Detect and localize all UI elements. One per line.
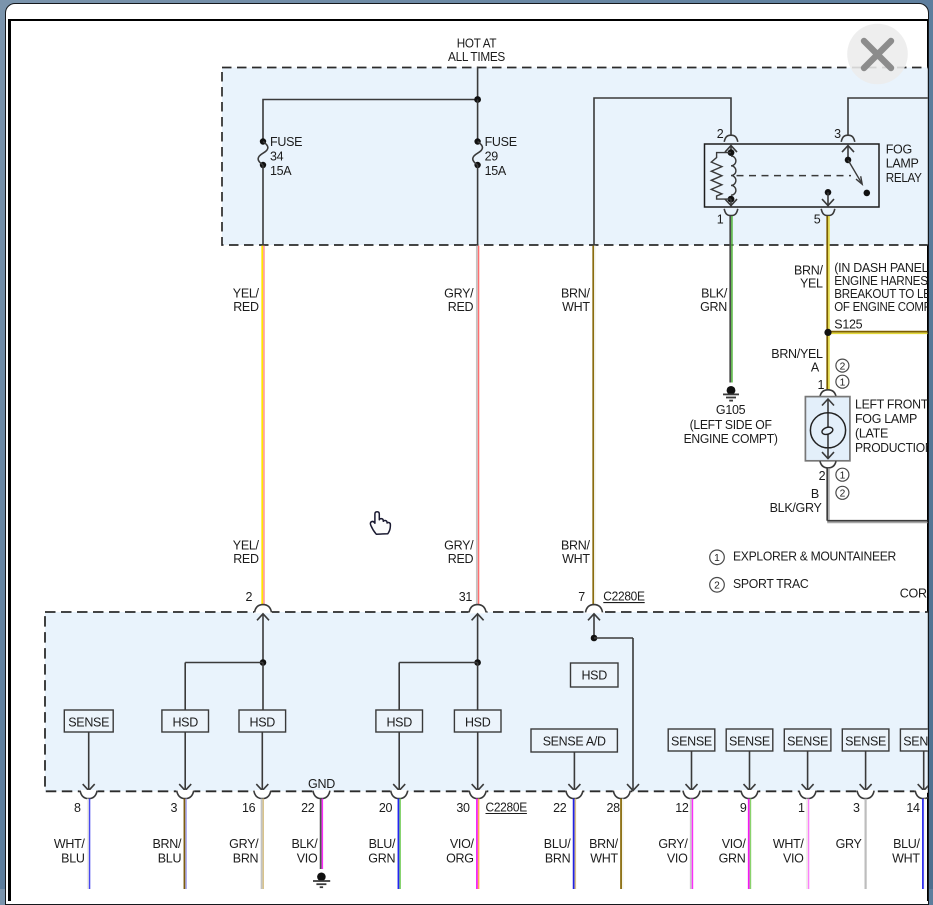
- svg-text:BRN: BRN: [233, 851, 259, 865]
- svg-text:BRN/: BRN/: [794, 263, 823, 277]
- svg-text:RED: RED: [233, 552, 259, 566]
- svg-text:3: 3: [171, 801, 178, 815]
- svg-text:BRN/YEL: BRN/YEL: [771, 347, 823, 361]
- svg-text:S125: S125: [834, 317, 862, 331]
- svg-text:RELAY: RELAY: [886, 171, 923, 185]
- svg-text:GRY: GRY: [836, 837, 863, 851]
- svg-text:16: 16: [242, 801, 256, 815]
- svg-text:3: 3: [834, 127, 841, 141]
- svg-text:GRY/: GRY/: [444, 286, 474, 300]
- svg-text:GRN: GRN: [368, 851, 395, 865]
- svg-text:(LEFT SIDE OF: (LEFT SIDE OF: [690, 418, 773, 432]
- svg-text:2: 2: [245, 590, 252, 604]
- svg-text:(LATE: (LATE: [855, 427, 888, 441]
- svg-text:SENSE: SENSE: [671, 734, 712, 748]
- svg-text:BRN/: BRN/: [561, 286, 590, 300]
- svg-text:GRY/: GRY/: [229, 837, 259, 851]
- svg-text:SENSE A/D: SENSE A/D: [543, 734, 606, 748]
- svg-text:8: 8: [74, 801, 81, 815]
- svg-text:9: 9: [740, 801, 747, 815]
- svg-text:PRODUCTION): PRODUCTION): [855, 441, 933, 455]
- svg-text:SPORT TRAC: SPORT TRAC: [733, 577, 809, 591]
- svg-text:2: 2: [717, 127, 724, 141]
- svg-text:(IN DASH PANEL: (IN DASH PANEL: [834, 261, 928, 275]
- svg-text:WHT: WHT: [892, 851, 920, 865]
- svg-text:BLK/: BLK/: [291, 837, 318, 851]
- svg-text:22: 22: [301, 801, 315, 815]
- svg-text:RED: RED: [448, 300, 474, 314]
- svg-text:1: 1: [840, 377, 846, 388]
- svg-text:YEL/: YEL/: [233, 538, 260, 552]
- svg-text:HSD: HSD: [386, 715, 412, 729]
- svg-text:C2280E: C2280E: [603, 590, 644, 604]
- svg-text:20: 20: [379, 801, 393, 815]
- svg-text:BRN/: BRN/: [153, 837, 182, 851]
- svg-text:FOG LAMP: FOG LAMP: [855, 412, 917, 426]
- svg-text:ENGINE HARNESS: ENGINE HARNESS: [834, 274, 933, 288]
- svg-text:VIO/: VIO/: [722, 837, 747, 851]
- svg-text:31: 31: [459, 590, 473, 604]
- svg-text:BLK/: BLK/: [701, 286, 728, 300]
- svg-text:FOG: FOG: [886, 142, 912, 156]
- svg-text:HSD: HSD: [465, 715, 491, 729]
- svg-text:BLU: BLU: [158, 851, 182, 865]
- svg-text:3: 3: [853, 801, 860, 815]
- svg-text:ALL TIMES: ALL TIMES: [448, 50, 505, 64]
- svg-text:30: 30: [456, 801, 470, 815]
- svg-text:5: 5: [814, 213, 821, 227]
- svg-text:BLU/: BLU/: [369, 837, 396, 851]
- svg-text:29: 29: [485, 149, 499, 163]
- svg-text:YEL: YEL: [800, 277, 823, 291]
- svg-text:VIO/: VIO/: [450, 837, 475, 851]
- svg-text:SENSE: SENSE: [845, 734, 886, 748]
- svg-text:2: 2: [714, 581, 720, 592]
- svg-text:BREAKOUT TO LEFT: BREAKOUT TO LEFT: [834, 287, 933, 301]
- svg-text:YEL/: YEL/: [233, 286, 260, 300]
- svg-text:SENSE: SENSE: [787, 734, 828, 748]
- svg-text:BRN/: BRN/: [589, 837, 618, 851]
- svg-text:G105: G105: [716, 403, 746, 417]
- svg-text:ENGINE COMPT): ENGINE COMPT): [684, 432, 778, 446]
- svg-text:GND: GND: [308, 777, 335, 791]
- svg-text:GRY/: GRY/: [658, 837, 688, 851]
- svg-text:14: 14: [906, 801, 920, 815]
- svg-text:FUSE: FUSE: [270, 135, 302, 149]
- svg-text:FUSE: FUSE: [485, 135, 517, 149]
- svg-text:HOT AT: HOT AT: [457, 36, 497, 50]
- svg-text:RED: RED: [233, 300, 259, 314]
- svg-text:BLU: BLU: [61, 851, 85, 865]
- svg-text:GRN: GRN: [719, 851, 746, 865]
- svg-text:CORD: CORD: [900, 586, 933, 600]
- svg-text:WHT/: WHT/: [54, 837, 86, 851]
- svg-text:B: B: [811, 487, 819, 501]
- svg-text:BLK/GRY: BLK/GRY: [770, 501, 823, 515]
- svg-text:VIO: VIO: [783, 851, 804, 865]
- svg-text:BRN/: BRN/: [561, 538, 590, 552]
- svg-text:28: 28: [606, 801, 620, 815]
- svg-text:LAMP: LAMP: [886, 157, 919, 171]
- svg-text:VIO: VIO: [667, 851, 688, 865]
- svg-text:GRN: GRN: [700, 300, 727, 314]
- svg-text:1: 1: [717, 213, 724, 227]
- svg-text:1: 1: [798, 801, 805, 815]
- svg-text:OF ENGINE COMPT): OF ENGINE COMPT): [834, 300, 933, 314]
- svg-text:15A: 15A: [485, 164, 507, 178]
- svg-text:HSD: HSD: [172, 715, 198, 729]
- svg-text:2: 2: [840, 489, 846, 500]
- svg-text:SENSE: SENSE: [903, 734, 933, 748]
- svg-text:SENSE: SENSE: [729, 734, 770, 748]
- svg-text:BLU/: BLU/: [893, 837, 920, 851]
- svg-text:15A: 15A: [270, 164, 292, 178]
- svg-text:12: 12: [675, 801, 689, 815]
- svg-text:22: 22: [553, 801, 567, 815]
- svg-text:WHT: WHT: [562, 552, 590, 566]
- svg-text:1: 1: [714, 553, 720, 564]
- svg-text:HSD: HSD: [250, 715, 276, 729]
- svg-text:SENSE: SENSE: [68, 715, 109, 729]
- svg-text:RED: RED: [448, 552, 474, 566]
- svg-text:GRY/: GRY/: [444, 538, 474, 552]
- svg-text:EXPLORER & MOUNTAINEER: EXPLORER & MOUNTAINEER: [733, 549, 896, 563]
- svg-text:HSD: HSD: [581, 668, 607, 682]
- svg-text:34: 34: [270, 149, 284, 163]
- svg-text:7: 7: [578, 590, 585, 604]
- svg-text:LEFT FRONT: LEFT FRONT: [855, 397, 929, 411]
- svg-text:C2280E: C2280E: [486, 800, 527, 814]
- svg-text:BRN: BRN: [545, 851, 571, 865]
- svg-text:WHT/: WHT/: [773, 837, 805, 851]
- svg-text:2: 2: [819, 469, 826, 483]
- svg-text:VIO: VIO: [297, 851, 318, 865]
- svg-text:WHT: WHT: [562, 300, 590, 314]
- svg-text:WHT: WHT: [590, 851, 618, 865]
- svg-text:ORG: ORG: [446, 851, 474, 865]
- svg-text:BLU/: BLU/: [544, 837, 571, 851]
- svg-text:1: 1: [840, 470, 846, 481]
- svg-text:A: A: [811, 360, 820, 374]
- svg-text:2: 2: [840, 361, 846, 372]
